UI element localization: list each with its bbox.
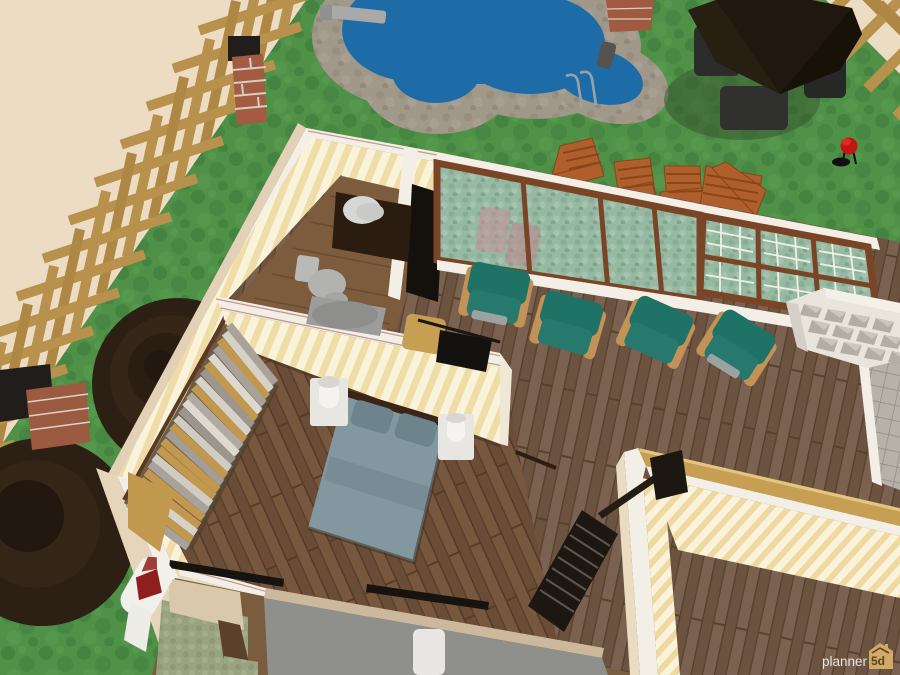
svg-text:5d: 5d [871,654,885,668]
svg-text:planner: planner [822,654,868,669]
